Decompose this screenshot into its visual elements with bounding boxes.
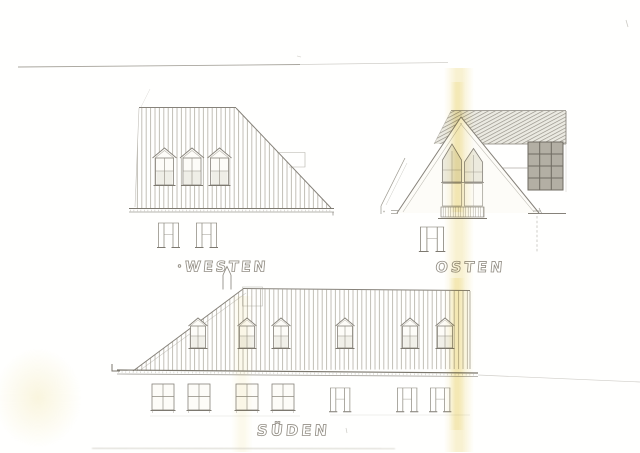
elevation-drawing-svg: WESTEN: [0, 0, 640, 453]
bottom-smudge: [92, 448, 395, 449]
south-label-text: SÜDEN: [256, 421, 331, 440]
scanned-drawing-page: WESTEN: [0, 0, 640, 453]
grid-window: [151, 384, 176, 413]
east-grid-window: [528, 142, 563, 190]
grid-window: [187, 384, 212, 413]
faint-stain-band: [231, 296, 253, 452]
grid-window: [271, 384, 296, 413]
paper-background: [0, 0, 640, 453]
west-label: WESTEN: [178, 260, 268, 276]
